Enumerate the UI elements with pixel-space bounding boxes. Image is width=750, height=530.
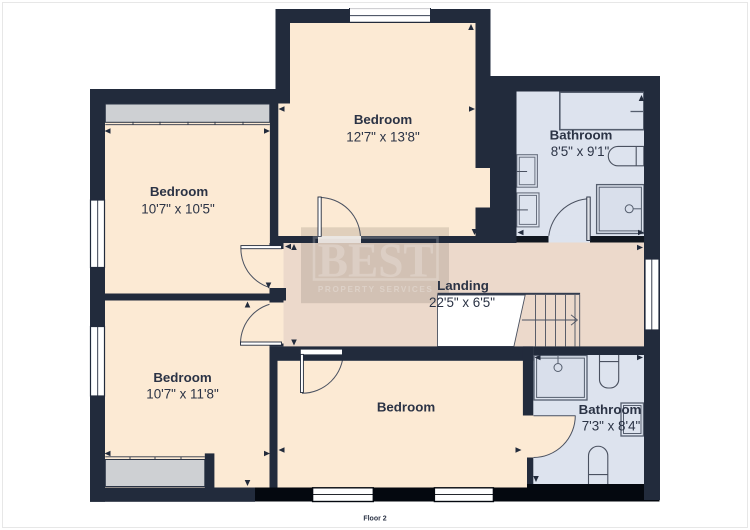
svg-text:Bathroom: Bathroom bbox=[550, 128, 613, 143]
svg-text:Bedroom: Bedroom bbox=[377, 400, 435, 415]
svg-text:Bathroom: Bathroom bbox=[579, 402, 642, 417]
svg-text:Bedroom: Bedroom bbox=[150, 184, 208, 199]
svg-text:Landing: Landing bbox=[437, 278, 489, 293]
svg-text:Floor 2: Floor 2 bbox=[363, 516, 386, 523]
svg-text:22'5" x 6'5": 22'5" x 6'5" bbox=[429, 295, 495, 310]
svg-text:12'7" x 13'8": 12'7" x 13'8" bbox=[346, 130, 420, 145]
svg-text:PROPERTY SERVICES: PROPERTY SERVICES bbox=[318, 285, 434, 294]
svg-text:BEST: BEST bbox=[318, 233, 434, 288]
svg-text:7'3" x 8'4": 7'3" x 8'4" bbox=[582, 419, 641, 434]
svg-text:Bedroom: Bedroom bbox=[153, 370, 211, 385]
svg-text:10'7" x 10'5": 10'7" x 10'5" bbox=[141, 202, 215, 217]
svg-text:Bedroom: Bedroom bbox=[354, 112, 412, 127]
svg-text:8'5" x 9'1": 8'5" x 9'1" bbox=[551, 144, 610, 159]
svg-text:10'7" x 11'8": 10'7" x 11'8" bbox=[146, 387, 219, 402]
